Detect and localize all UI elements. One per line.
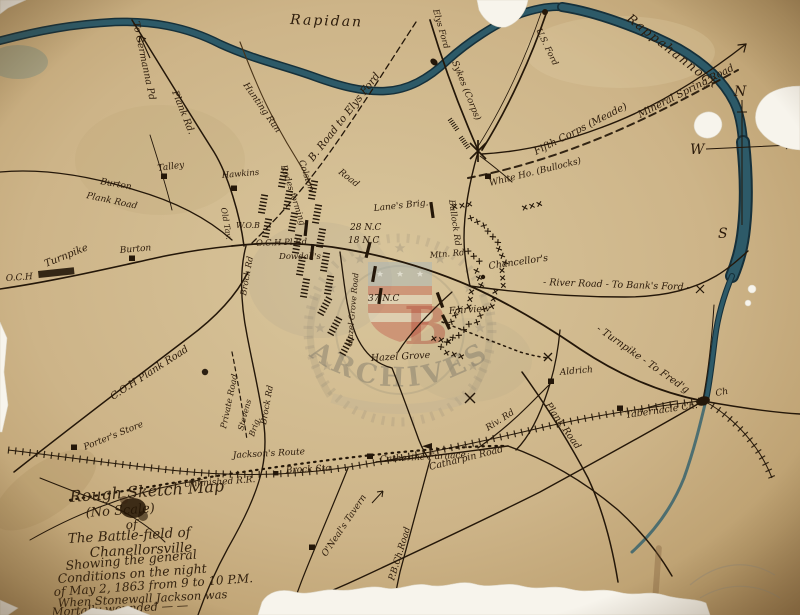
chancellorsville-map: B ARCHIVES	[0, 0, 800, 615]
scanned-map-page: B ARCHIVES	[0, 0, 800, 615]
vignette-overlay	[0, 0, 800, 615]
